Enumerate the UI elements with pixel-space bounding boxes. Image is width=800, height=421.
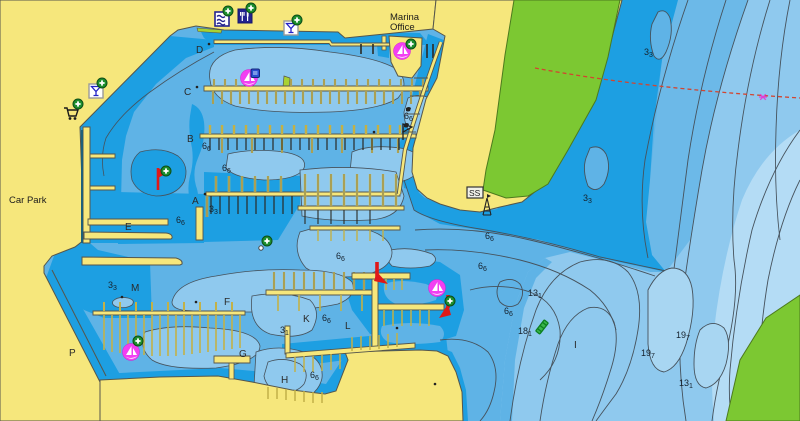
svg-text:C: C <box>184 87 191 98</box>
svg-text:A: A <box>192 196 199 207</box>
svg-text:K: K <box>303 314 310 325</box>
svg-text:L: L <box>345 321 351 332</box>
svg-text:Office: Office <box>390 22 415 33</box>
svg-text:D: D <box>196 45 203 56</box>
svg-text:F: F <box>224 297 230 308</box>
svg-text:M: M <box>131 283 139 294</box>
svg-text:E: E <box>125 222 132 233</box>
svg-text:P: P <box>69 348 76 359</box>
svg-text:SS: SS <box>469 188 481 198</box>
svg-text:I: I <box>574 340 577 351</box>
svg-text:B: B <box>187 134 194 145</box>
svg-text:G: G <box>239 349 247 360</box>
svg-text:H: H <box>281 375 288 386</box>
svg-text:Car Park: Car Park <box>9 195 47 206</box>
